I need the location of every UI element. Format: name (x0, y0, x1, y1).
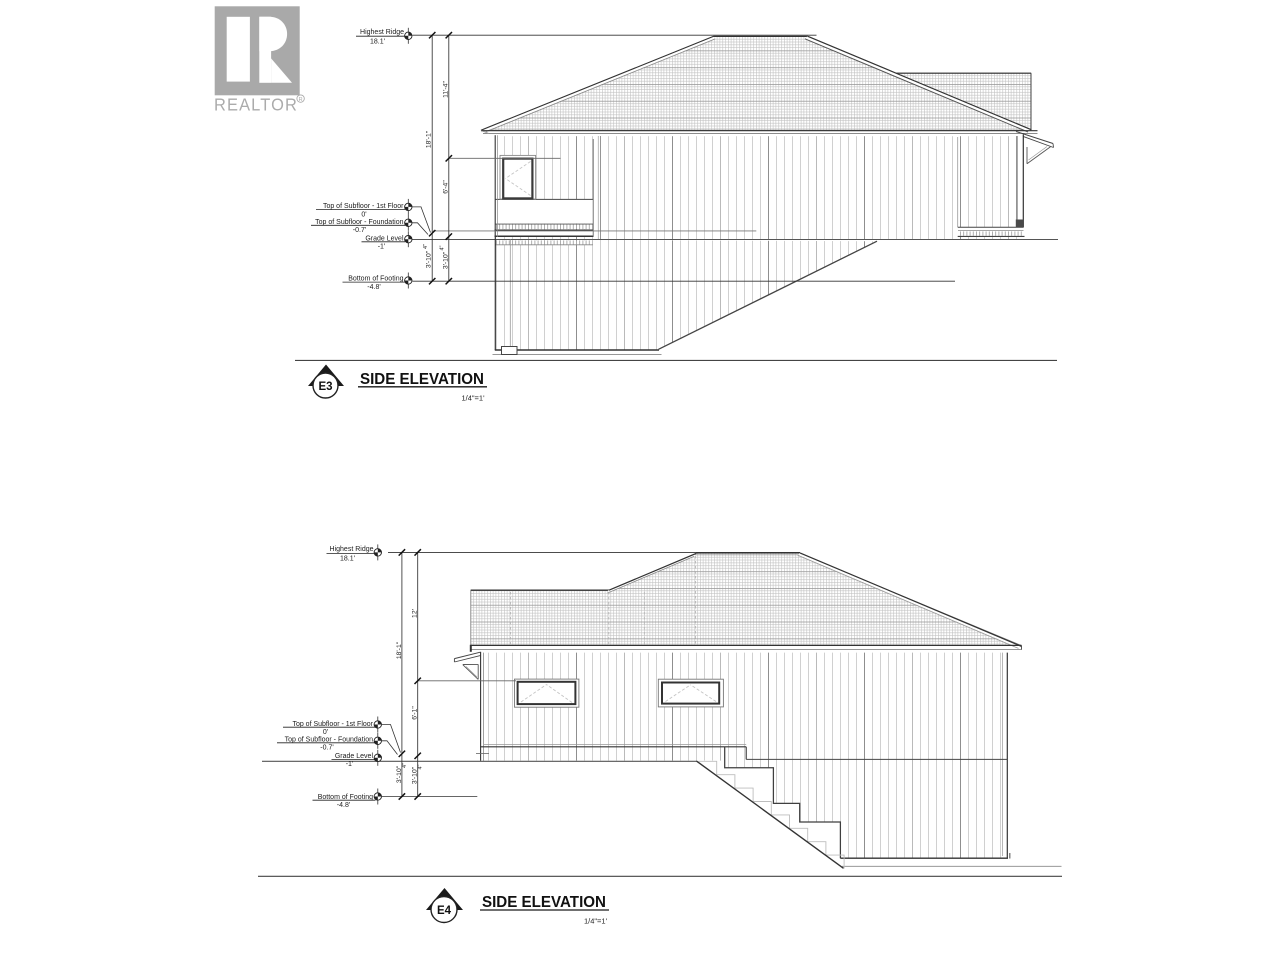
svg-text:4": 4" (423, 244, 429, 249)
svg-text:E3: E3 (318, 381, 332, 393)
svg-text:18.1': 18.1' (370, 39, 385, 46)
svg-text:E4: E4 (437, 905, 452, 917)
svg-text:-1': -1' (378, 243, 386, 250)
svg-text:18'-1": 18'-1" (426, 130, 433, 148)
svg-text:0': 0' (323, 729, 328, 736)
svg-text:Highest Ridge: Highest Ridge (360, 29, 404, 36)
svg-text:Top of Subfloor - 1st Floor: Top of Subfloor - 1st Floor (292, 721, 373, 728)
svg-text:4": 4" (402, 763, 408, 768)
svg-text:0': 0' (361, 212, 366, 219)
svg-text:18'-1": 18'-1" (396, 641, 403, 659)
svg-text:18.1': 18.1' (340, 555, 355, 562)
svg-text:SIDE ELEVATION: SIDE ELEVATION (482, 894, 606, 911)
svg-text:Top of Subfloor - 1st Floor: Top of Subfloor - 1st Floor (323, 203, 404, 210)
svg-text:Bottom of Footing: Bottom of Footing (318, 794, 373, 801)
svg-text:Grade Level: Grade Level (335, 753, 374, 760)
svg-text:Highest Ridge: Highest Ridge (330, 546, 374, 553)
svg-text:Top of Subfloor - Foundation: Top of Subfloor - Foundation (285, 736, 373, 743)
svg-text:4": 4" (440, 245, 446, 250)
svg-text:3'-10": 3'-10" (426, 250, 433, 268)
svg-text:1/4"=1': 1/4"=1' (584, 917, 608, 926)
svg-text:Grade Level: Grade Level (365, 235, 404, 242)
svg-text:SIDE ELEVATION: SIDE ELEVATION (360, 371, 484, 388)
svg-text:-1': -1' (346, 761, 354, 768)
svg-text:-0.7': -0.7' (353, 227, 366, 234)
svg-text:12': 12' (412, 609, 419, 618)
svg-text:-0.7': -0.7' (320, 744, 333, 751)
svg-text:-4.8': -4.8' (337, 802, 350, 809)
svg-text:-4.8': -4.8' (367, 284, 380, 291)
svg-text:Top of Subfloor - Foundation: Top of Subfloor - Foundation (315, 219, 403, 226)
svg-text:REALTOR: REALTOR (214, 95, 298, 115)
svg-text:Bottom of Footing: Bottom of Footing (348, 276, 403, 283)
svg-text:1/4"=1': 1/4"=1' (461, 394, 485, 403)
svg-text:6'-1": 6'-1" (412, 706, 419, 720)
svg-text:6'-4": 6'-4" (442, 180, 449, 194)
svg-text:3'-10": 3'-10" (442, 251, 449, 269)
svg-text:11'-4": 11'-4" (442, 81, 449, 98)
svg-text:4": 4" (417, 764, 423, 769)
svg-text:R: R (299, 97, 303, 103)
